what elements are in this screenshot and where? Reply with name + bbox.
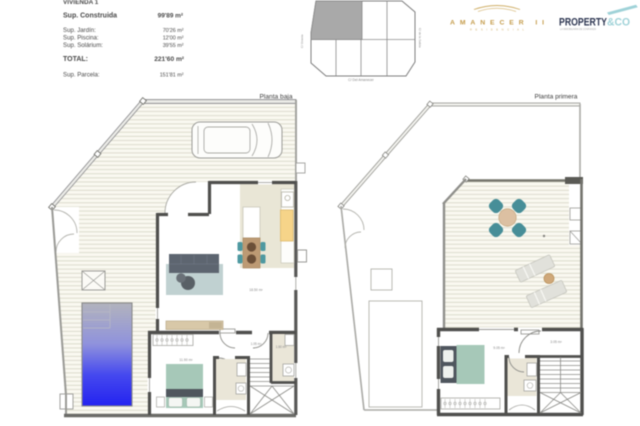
svg-text:C/ de la Salida: C/ de la Salida xyxy=(418,28,422,48)
svg-text:C/ Del Amanecer: C/ Del Amanecer xyxy=(348,78,374,82)
svg-text:C/ Oriente: C/ Oriente xyxy=(300,34,304,48)
svg-text:Sup. Parcela:: Sup. Parcela: xyxy=(63,72,100,79)
svg-text:Sup. Construida: Sup. Construida xyxy=(63,13,117,20)
svg-text:18.50 m²: 18.50 m² xyxy=(249,288,263,292)
svg-text:Planta primera: Planta primera xyxy=(535,94,578,101)
svg-text:151'81 m²: 151'81 m² xyxy=(160,73,184,79)
svg-text:Sup. Solárium:: Sup. Solárium: xyxy=(63,42,103,49)
svg-text:Sup. Jardín:: Sup. Jardín: xyxy=(63,27,96,34)
svg-text:1.60 m²: 1.60 m² xyxy=(276,345,287,349)
svg-text:12'00 m²: 12'00 m² xyxy=(163,36,184,42)
svg-text:1.05 m²: 1.05 m² xyxy=(251,342,262,346)
svg-text:PROPERTY: PROPERTY xyxy=(559,17,608,29)
svg-text:99'89 m²: 99'89 m² xyxy=(158,13,183,20)
svg-text:9.05 m²: 9.05 m² xyxy=(493,346,505,350)
svg-text:&CO: &CO xyxy=(607,17,630,29)
svg-text:Sup. Piscina:: Sup. Piscina: xyxy=(63,35,99,42)
svg-text:LA INMOBILIARIA DE CONFIANZA: LA INMOBILIARIA DE CONFIANZA xyxy=(560,27,596,31)
svg-text:11.90 m²: 11.90 m² xyxy=(179,358,193,362)
svg-text:VIVIENDA 1: VIVIENDA 1 xyxy=(63,0,99,6)
svg-text:221'60 m²: 221'60 m² xyxy=(154,56,185,63)
svg-text:70'26 m²: 70'26 m² xyxy=(163,28,184,34)
svg-text:TOTAL:: TOTAL: xyxy=(63,56,88,63)
svg-text:39'55 m²: 39'55 m² xyxy=(163,43,184,49)
svg-text:3.05 m²: 3.05 m² xyxy=(550,340,562,344)
